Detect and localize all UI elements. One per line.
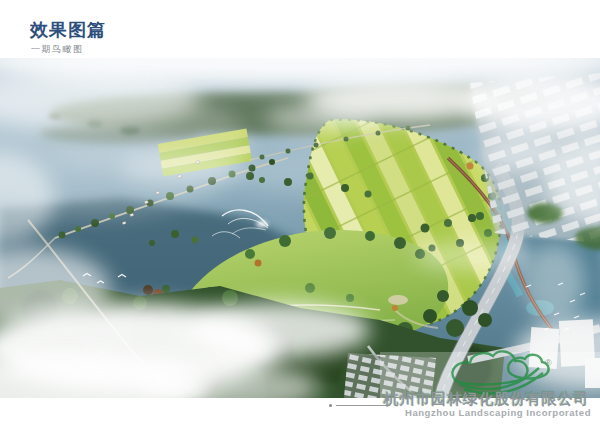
company-name-en: Hangzhou Landscaping Incorporated: [405, 407, 591, 418]
page-subtitle: 一期鸟瞰图: [31, 43, 84, 56]
footer-divider-line: [329, 403, 389, 408]
footer-line-rule: [336, 405, 389, 406]
page-title: 效果图篇: [30, 18, 106, 42]
registered-mark: ®: [545, 358, 552, 368]
footer-line-dot: [329, 404, 332, 407]
